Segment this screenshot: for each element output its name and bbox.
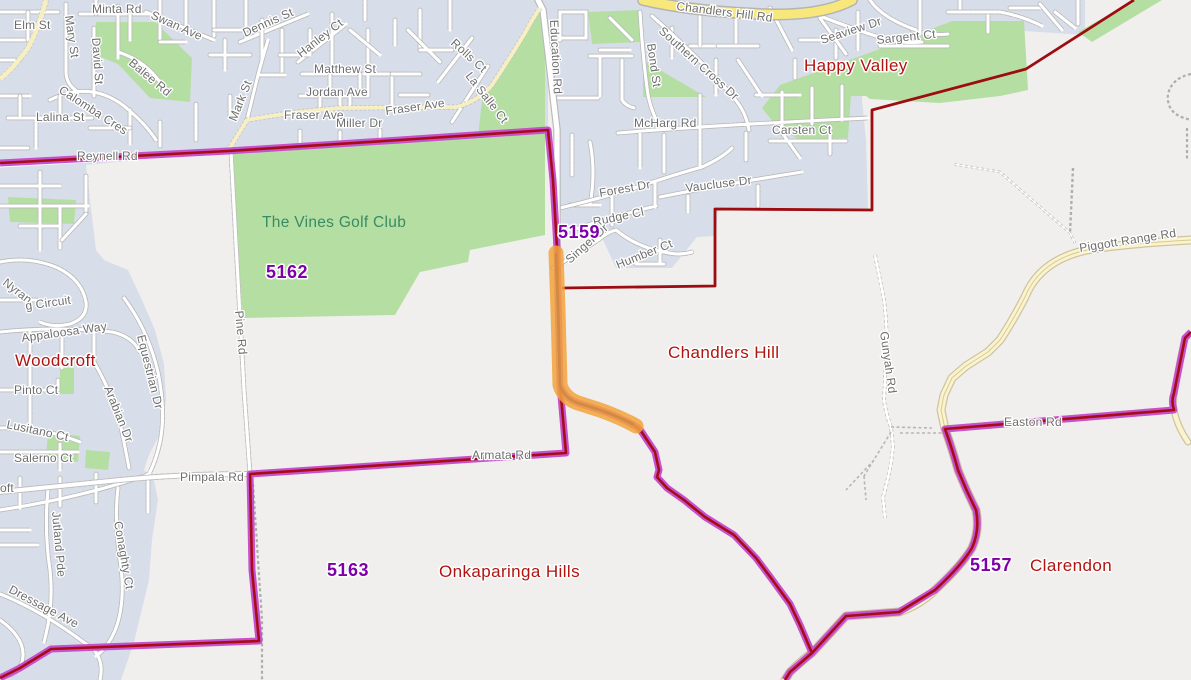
svg-text:5162: 5162 (266, 262, 308, 282)
svg-text:Fraser Ave: Fraser Ave (284, 108, 344, 122)
svg-text:Pimpala Rd: Pimpala Rd (180, 470, 244, 484)
svg-text:Elm St: Elm St (14, 18, 51, 32)
svg-text:5159: 5159 (558, 222, 600, 242)
svg-text:5163: 5163 (327, 560, 369, 580)
svg-text:The Vines Golf Club: The Vines Golf Club (262, 214, 406, 231)
svg-text:Matthew St: Matthew St (314, 62, 376, 76)
svg-text:Salerno Ct: Salerno Ct (14, 451, 73, 465)
svg-text:5157: 5157 (970, 555, 1012, 575)
svg-text:Reynell Rd: Reynell Rd (77, 149, 138, 163)
svg-text:Lalina St: Lalina St (36, 110, 85, 124)
svg-text:Happy Valley: Happy Valley (804, 56, 908, 75)
svg-text:Pinto Ct: Pinto Ct (14, 383, 59, 397)
svg-text:Armata Rd: Armata Rd (472, 448, 531, 462)
svg-text:Easton Rd: Easton Rd (1004, 415, 1062, 429)
svg-text:Minta Rd: Minta Rd (92, 2, 142, 16)
svg-text:McHarg Rd: McHarg Rd (634, 116, 696, 130)
svg-text:Miller Dr: Miller Dr (336, 116, 382, 130)
svg-text:oft: oft (0, 481, 14, 495)
svg-text:Carsten Ct: Carsten Ct (772, 123, 832, 137)
svg-text:Onkaparinga Hills: Onkaparinga Hills (439, 562, 580, 581)
svg-text:Jordan Ave: Jordan Ave (306, 85, 368, 99)
svg-text:Woodcroft: Woodcroft (15, 351, 96, 370)
svg-text:Chandlers Hill: Chandlers Hill (668, 343, 779, 362)
svg-text:Clarendon: Clarendon (1030, 556, 1112, 575)
